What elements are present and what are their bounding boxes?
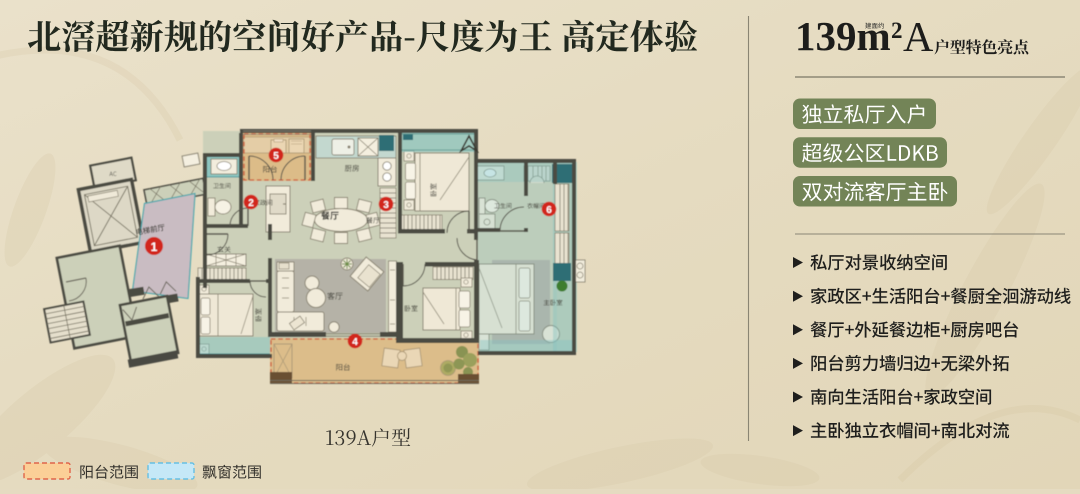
svg-text:6: 6 xyxy=(546,205,552,216)
svg-text:1: 1 xyxy=(151,240,158,254)
svg-text:2: 2 xyxy=(891,18,903,43)
svg-text:2: 2 xyxy=(248,198,254,209)
svg-text:139m: 139m xyxy=(795,13,891,59)
svg-text:3: 3 xyxy=(383,200,389,211)
svg-text:A: A xyxy=(903,15,934,61)
svg-text:4: 4 xyxy=(352,337,358,348)
svg-text:5: 5 xyxy=(273,151,279,162)
